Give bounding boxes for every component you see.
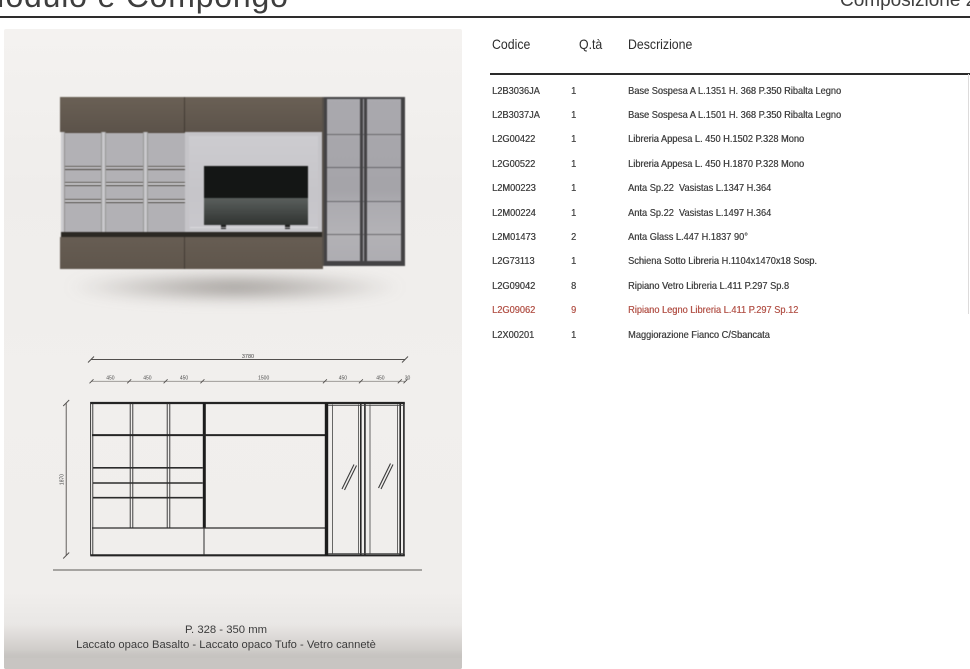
svg-text:1500: 1500 [258, 376, 269, 382]
svg-text:450: 450 [376, 376, 385, 382]
svg-text:450: 450 [339, 376, 348, 382]
svg-text:1870: 1870 [60, 474, 66, 485]
svg-text:30: 30 [405, 376, 411, 382]
svg-text:3780: 3780 [242, 354, 254, 360]
svg-text:450: 450 [180, 376, 189, 382]
svg-text:450: 450 [143, 376, 152, 382]
svg-text:450: 450 [106, 376, 115, 382]
